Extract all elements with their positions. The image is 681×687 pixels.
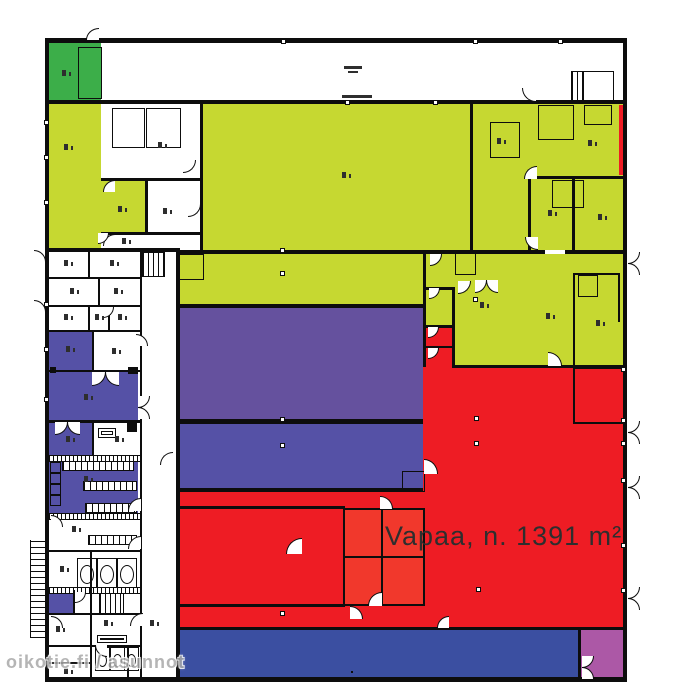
wall [49,277,140,279]
wall [470,104,473,250]
room-label-mark [110,260,114,266]
zone-indigo-hall [178,424,423,488]
door-swing-icon [138,407,150,419]
room-label-mark [548,210,552,216]
wall [98,277,100,305]
wall [101,178,200,181]
wall [178,506,345,509]
stairs-corridor [142,252,165,277]
table [97,635,127,643]
wall [88,305,90,330]
room-label-mark [118,314,122,320]
wall [618,273,620,322]
wall-outer-left [45,38,49,682]
wall-opening-marker [473,39,478,44]
shelf-unit [62,461,134,471]
wall [176,248,180,679]
room-label-mark [546,313,550,319]
zone-violet-hall [178,308,423,419]
wall-partition [49,587,140,594]
closet [490,122,520,158]
zone-big-hall [202,104,470,250]
wall-opening-marker [621,367,626,372]
wall-opening-marker [44,155,49,160]
room-label-mark [72,526,76,532]
wall-block [127,423,137,432]
wall-outer-top [45,38,627,43]
door-swing-icon [103,307,114,318]
wall [178,419,423,424]
wall [49,550,140,552]
door-swing-icon [628,598,640,610]
wall-opening-marker [280,417,285,422]
wall [45,248,178,252]
room-label-mark [56,626,60,632]
wall-opening-marker [280,248,285,253]
room-label-mark [150,620,154,626]
wall [88,252,90,277]
wall [452,287,455,367]
toilet-stall [117,558,137,588]
room-top-right [583,71,614,102]
zone-blue-strip [178,630,580,677]
wall-opening-marker [44,347,49,352]
closet [584,105,612,125]
wall-opening-marker [44,397,49,402]
wall-block [128,367,138,374]
wall [573,275,575,367]
room-label-mark [62,70,66,76]
toilet-stall [97,558,117,588]
closet [552,180,584,208]
wall [578,627,623,630]
sub-room [402,471,425,492]
wall-partition [49,455,140,462]
room-label-mark [70,288,74,294]
door-swing-icon [183,160,196,173]
locker [50,473,61,484]
wall-opening [545,250,565,254]
wall-opening-marker [558,39,563,44]
wall-opening-marker [433,100,438,105]
wall [423,252,426,367]
door-swing-icon [628,487,640,499]
wall [92,330,94,370]
wall [343,556,425,558]
wall-opening-marker [473,297,478,302]
closet [112,108,145,148]
room-label-mark [64,144,68,150]
room-label-mark [122,238,126,244]
wall-opening-marker [474,441,479,446]
room-label-mark [588,140,592,146]
room-label-mark [497,138,501,144]
wall-block [50,367,56,373]
tiny-text-mark [348,71,358,73]
room-label-mark [66,346,70,352]
wall-opening-marker [280,443,285,448]
room-label-mark [342,172,346,178]
wall [200,104,203,250]
column-dot [351,671,353,673]
room-label-mark [95,314,99,320]
wall [49,330,140,332]
room-label-mark [64,314,68,320]
room-label-mark [115,436,119,442]
wall-opening-marker [621,441,626,446]
door-swing-icon [136,334,148,346]
shelf-unit [83,481,137,491]
door-swing-icon [628,263,640,275]
room-label-mark [114,288,118,294]
sub-room [178,254,204,280]
wall [45,100,627,104]
closet [538,105,574,140]
wall-opening-marker [621,478,626,483]
room-blue-1 [49,330,92,370]
wall-opening-marker [621,588,626,593]
room-label-mark [158,142,162,148]
wall-opening-marker [280,271,285,276]
wall-partition [49,513,140,520]
wall-outer-bottom [45,677,627,682]
room-label-mark [112,348,116,354]
wall [90,550,92,613]
watermark: oikotie.fi / asunnot [6,652,185,673]
wall-opening-marker [44,302,49,307]
wall-opening-marker [280,611,285,616]
locker [50,484,61,495]
wall-opening-marker [44,120,49,125]
wall [145,178,148,232]
wall [178,488,423,492]
wall [178,604,345,607]
vacant-area-label: Vapaa, n. 1391 m² [385,521,622,552]
floor-plan: Vapaa, n. 1391 m² oikotie.fi / asunnot [0,0,681,687]
toilet-stall [77,558,97,588]
closet [146,108,181,148]
room-label-mark [163,208,167,214]
closet [578,275,598,297]
room-label-mark [60,566,64,572]
room-label-mark [66,436,70,442]
wall [178,304,423,308]
zone-red-strip [423,325,453,630]
wall [528,176,623,179]
door-swing-icon [160,452,173,465]
locker [50,495,61,506]
wall-opening-marker [44,200,49,205]
wall [92,422,94,455]
room-label-mark [598,214,602,220]
room-label-mark [118,206,122,212]
wall-outer-right [623,38,627,682]
door-swing-icon [75,592,86,603]
wall-opening-marker [281,39,286,44]
room-label-mark [84,476,88,482]
wall-opening-marker [345,100,350,105]
wall [101,232,200,235]
tiny-text-mark [344,66,362,69]
room-label-mark [64,260,68,266]
red-wall-strip [619,105,623,175]
wall [49,305,140,307]
wall-opening-marker [474,416,479,421]
table [98,428,116,438]
closet [78,47,102,99]
room-label-mark [480,302,484,308]
zone-left-chartreuse-room [49,104,101,248]
room-label-mark [596,320,600,326]
wall [49,613,140,615]
wall [578,627,581,679]
room-label-mark [84,394,88,400]
wall [178,627,580,630]
closet [455,253,476,275]
tiny-text-mark [342,95,372,98]
locker [50,462,61,473]
stairs-lower [99,591,124,614]
door-swing-icon [628,432,640,444]
door-swing-icon [86,28,99,40]
red-corner-room [573,367,627,424]
room-label-mark [104,620,108,626]
wall-opening-marker [621,418,626,423]
wall-opening-marker [476,587,481,592]
